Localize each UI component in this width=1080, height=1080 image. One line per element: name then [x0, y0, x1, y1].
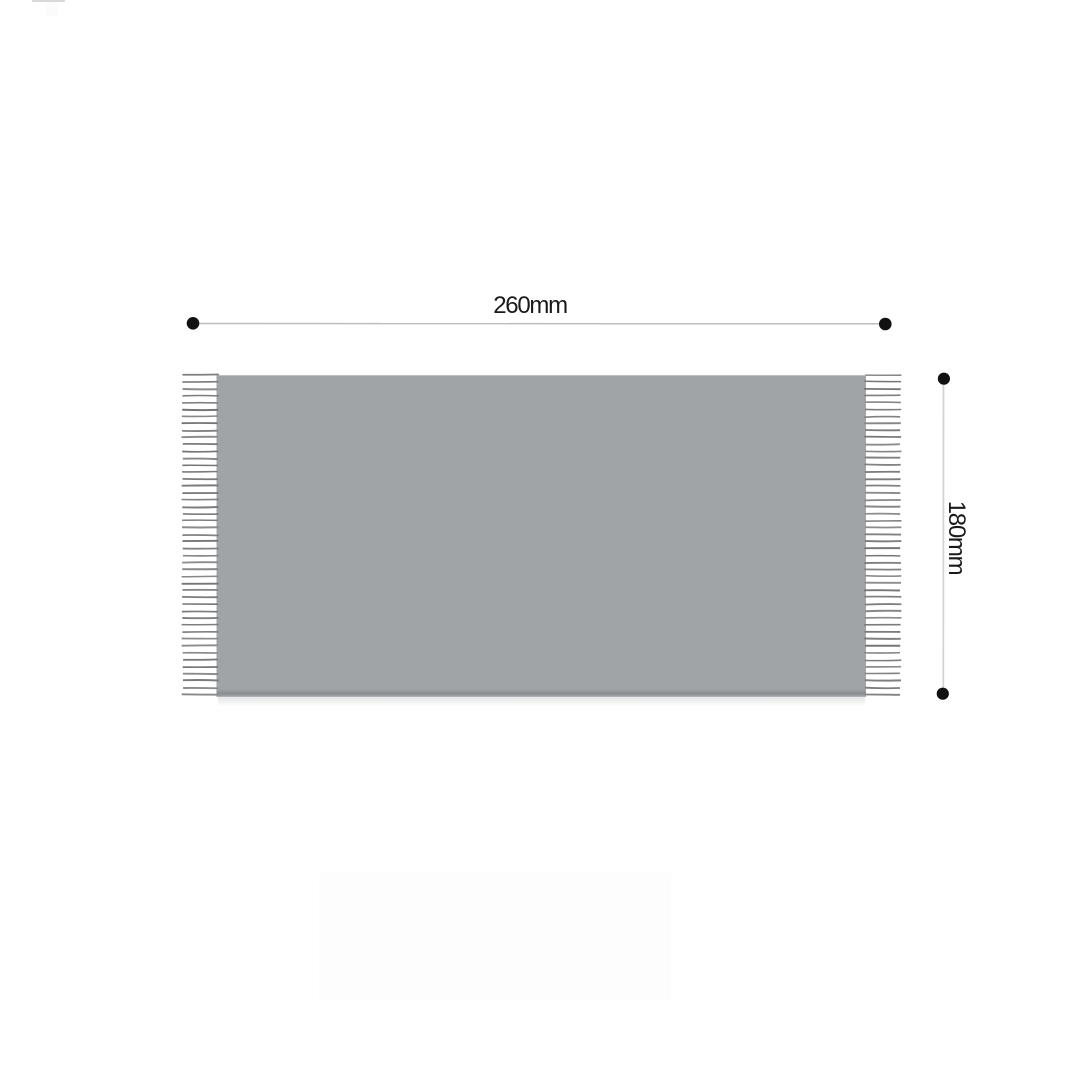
svg-text:260mm: 260mm: [493, 292, 567, 319]
svg-text:180mm: 180mm: [943, 501, 970, 575]
